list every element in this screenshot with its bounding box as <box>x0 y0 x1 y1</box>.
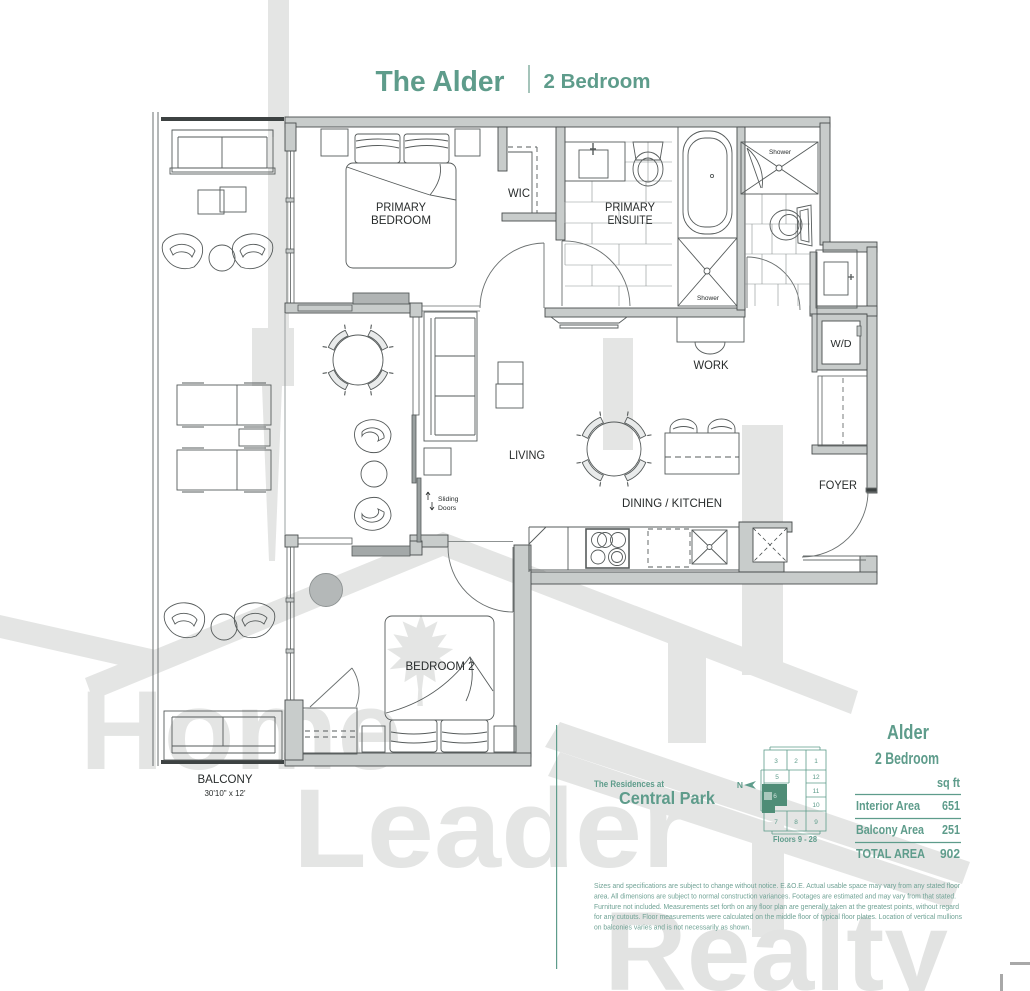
svg-text:PRIMARY: PRIMARY <box>376 200 426 214</box>
svg-text:2 Bedroom: 2 Bedroom <box>544 71 651 93</box>
svg-text:Floors 9 - 28: Floors 9 - 28 <box>773 834 817 844</box>
svg-text:Shower: Shower <box>697 295 720 302</box>
svg-text:PRIMARY: PRIMARY <box>605 200 655 214</box>
svg-text:FOYER: FOYER <box>819 478 857 492</box>
svg-text:TOTAL AREA: TOTAL AREA <box>856 847 925 861</box>
svg-text:Alder: Alder <box>887 721 929 744</box>
svg-text:on balconies varies and is not: on balconies varies and is not necessari… <box>594 923 751 932</box>
svg-text:BALCONY: BALCONY <box>198 772 253 786</box>
svg-text:WORK: WORK <box>694 358 729 372</box>
svg-text:sq ft: sq ft <box>937 776 961 790</box>
svg-text:1: 1 <box>814 758 818 765</box>
svg-text:BEDROOM 2: BEDROOM 2 <box>406 659 475 673</box>
svg-text:30'10" x 12': 30'10" x 12' <box>204 789 246 798</box>
svg-text:Balcony Area: Balcony Area <box>856 823 925 837</box>
svg-text:ENSUITE: ENSUITE <box>608 213 653 227</box>
svg-text:2 Bedroom: 2 Bedroom <box>875 749 939 768</box>
svg-text:251: 251 <box>942 823 960 837</box>
svg-text:5: 5 <box>775 774 779 781</box>
svg-text:7: 7 <box>774 819 778 826</box>
svg-text:Sizes and specifications are s: Sizes and specifications are subject to … <box>594 881 960 890</box>
svg-text:12: 12 <box>812 774 820 781</box>
svg-text:N: N <box>737 780 743 790</box>
svg-text:Furniture not included. Measur: Furniture not included. Measurements set… <box>594 902 959 911</box>
svg-text:Central Park: Central Park <box>619 788 715 808</box>
svg-text:2: 2 <box>794 758 798 765</box>
svg-text:BEDROOM: BEDROOM <box>371 213 431 227</box>
svg-text:6: 6 <box>773 793 777 800</box>
svg-text:W/D: W/D <box>831 338 852 350</box>
svg-text:Interior Area: Interior Area <box>856 799 921 813</box>
svg-text:Sliding: Sliding <box>438 496 459 503</box>
svg-text:Shower: Shower <box>769 149 792 156</box>
svg-text:651: 651 <box>942 799 960 813</box>
svg-text:for any cutouts. Floor measure: for any cutouts. Floor measurements were… <box>594 912 962 921</box>
svg-text:DINING / KITCHEN: DINING / KITCHEN <box>622 496 722 510</box>
svg-text:area. All dimensions are subje: area. All dimensions are subject to norm… <box>594 891 956 900</box>
svg-text:9: 9 <box>814 819 818 826</box>
svg-text:11: 11 <box>813 788 820 795</box>
svg-text:10: 10 <box>812 802 820 809</box>
svg-text:WIC: WIC <box>508 186 530 200</box>
svg-text:8: 8 <box>794 819 798 826</box>
svg-text:LIVING: LIVING <box>509 448 545 462</box>
svg-text:Doors: Doors <box>438 505 457 512</box>
svg-text:3: 3 <box>774 758 778 765</box>
svg-text:902: 902 <box>940 847 960 861</box>
svg-text:The Alder: The Alder <box>376 66 505 98</box>
